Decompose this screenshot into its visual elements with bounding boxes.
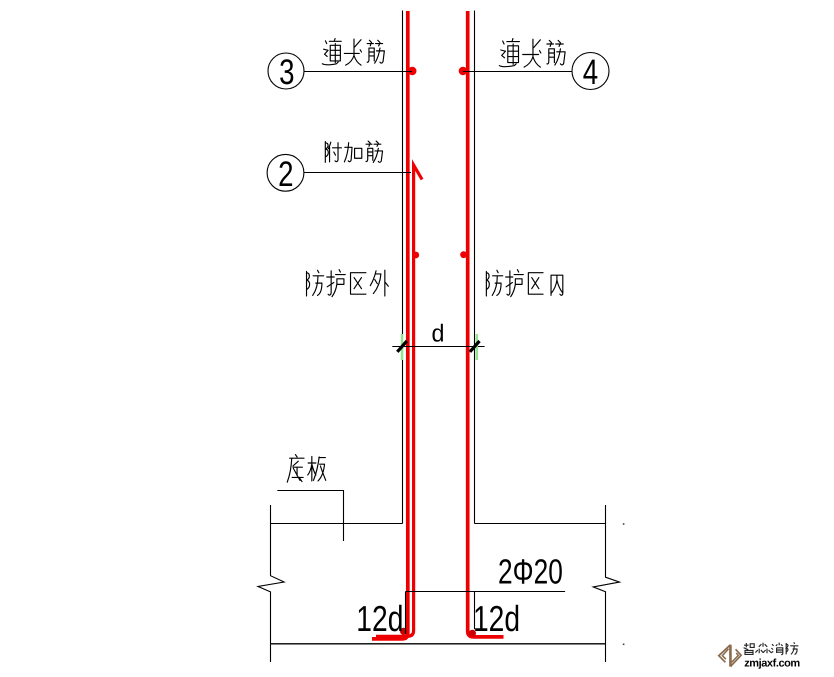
svg-text:12d: 12d [356, 598, 403, 639]
svg-text:2: 2 [278, 154, 293, 194]
svg-text:4: 4 [583, 52, 598, 92]
svg-text:zmjaxf.com: zmjaxf.com [744, 657, 800, 669]
svg-text:12d: 12d [473, 598, 520, 639]
svg-text:3: 3 [279, 52, 294, 92]
svg-text:d: d [431, 320, 444, 347]
svg-text:2Φ20: 2Φ20 [498, 553, 563, 592]
